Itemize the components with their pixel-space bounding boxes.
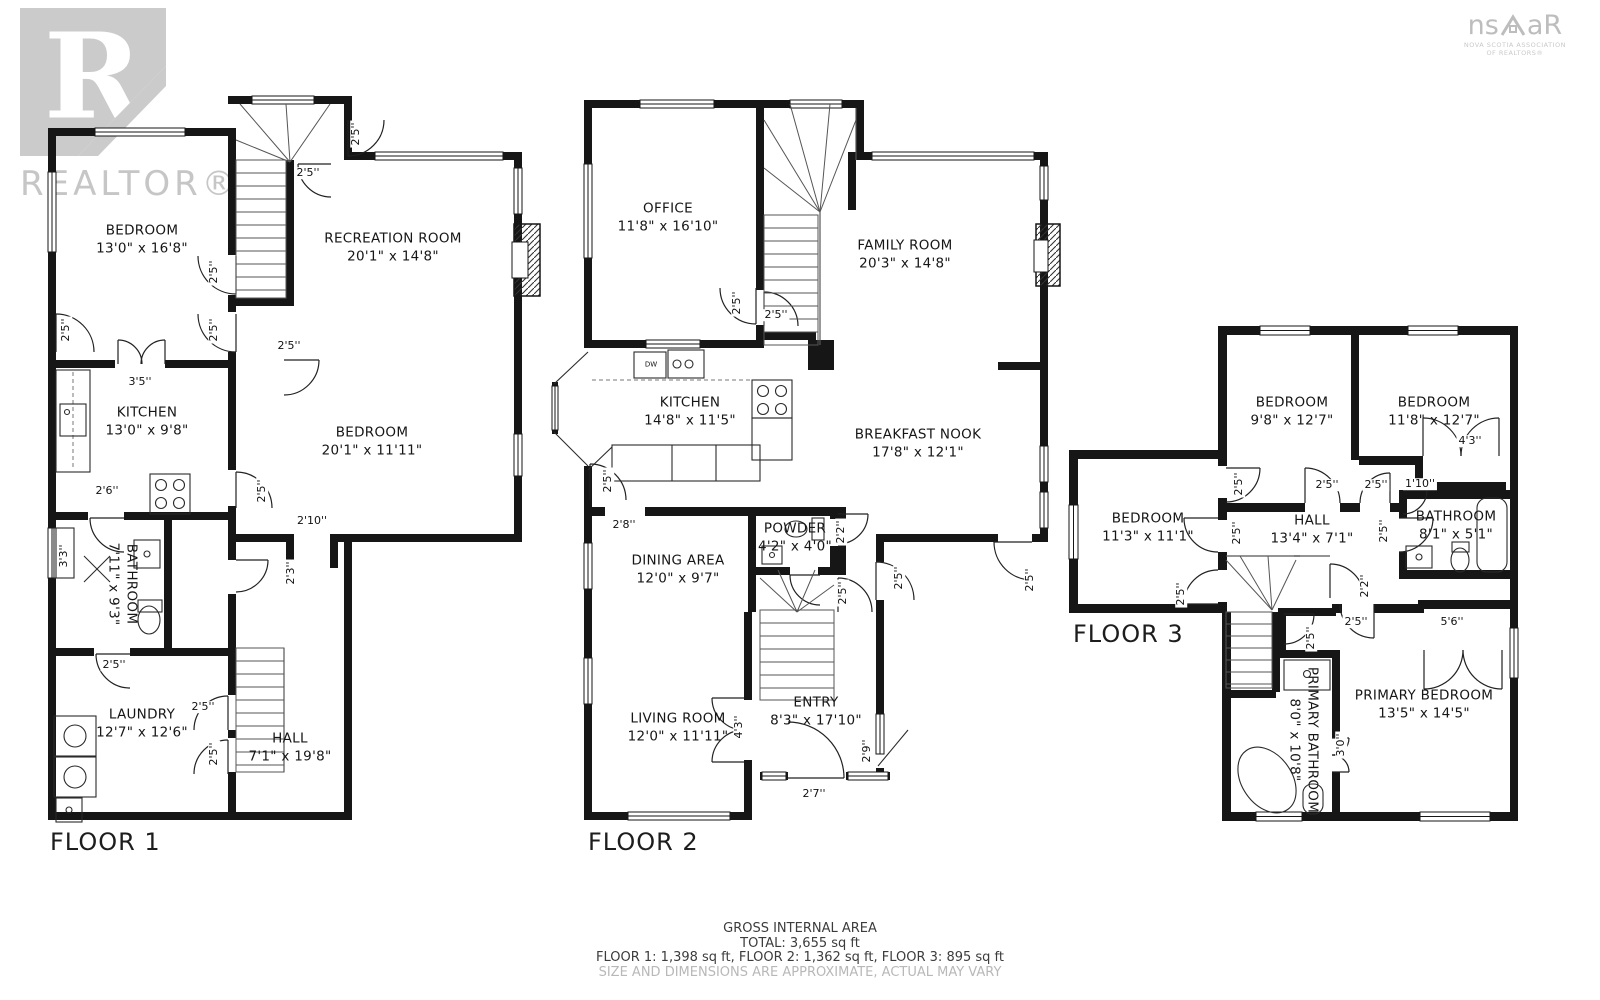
floor-plan-svg: [0, 0, 1600, 1000]
footer-title: GROSS INTERNAL AREA: [0, 922, 1600, 937]
footer-floor-areas: FLOOR 1: 1,398 sq ft, FLOOR 2: 1,362 sq …: [0, 951, 1600, 966]
area-summary: GROSS INTERNAL AREA TOTAL: 3,655 sq ft F…: [0, 922, 1600, 980]
footer-disclaimer: SIZE AND DIMENSIONS ARE APPROXIMATE, ACT…: [0, 966, 1600, 981]
floorplan-page: R REALTOR® ns aR NOVA SCOTIA ASSOCIATION…: [0, 0, 1600, 1000]
footer-total: TOTAL: 3,655 sq ft: [0, 937, 1600, 952]
